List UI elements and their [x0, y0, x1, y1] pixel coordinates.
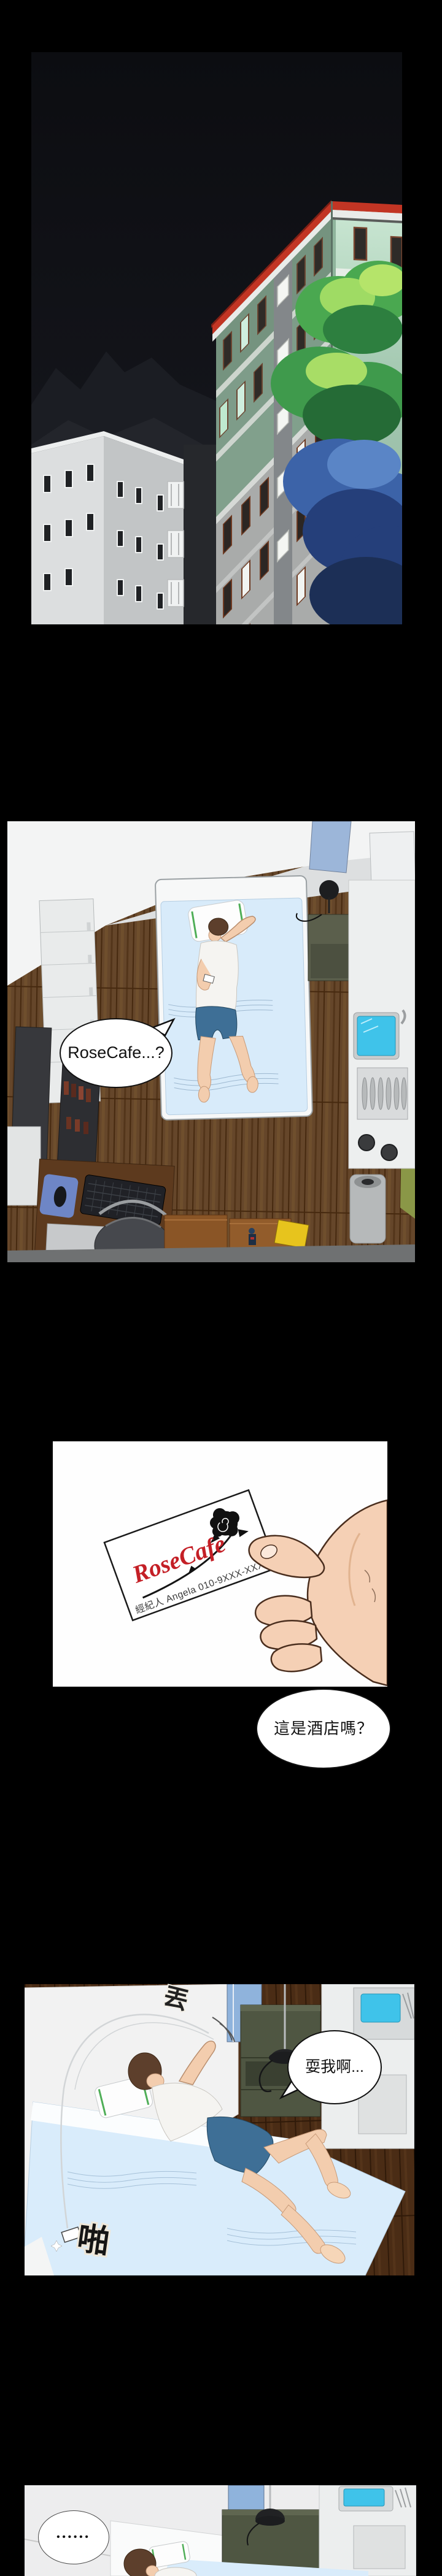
night-exterior-art — [31, 52, 402, 624]
speech-text-teasing: 耍我啊... — [305, 2059, 364, 2076]
speech-bubble-rosecafe: RoseCafe...? — [60, 1018, 173, 1088]
panel-night-exterior — [31, 52, 402, 624]
svg-text:啪: 啪 — [75, 2221, 112, 2261]
speech-bubble-teasing: 耍我啊... — [287, 2030, 382, 2104]
speech-text-silence: •••••• — [56, 2532, 91, 2543]
speech-text-rosecafe: RoseCafe...? — [68, 1044, 165, 1062]
sfx-slap: 啪 — [65, 2213, 122, 2269]
webtoon-page: RoseCafe 經紀人 Angela 010-9XXX-XXXX — [0, 0, 442, 2576]
sink-water — [344, 2489, 384, 2506]
white-building — [31, 431, 184, 624]
svg-text:丟: 丟 — [161, 1983, 191, 2015]
sink-water — [361, 1994, 400, 2022]
stove-burner — [381, 1144, 397, 1160]
stove-burner — [359, 1135, 374, 1151]
business-card-art: RoseCafe 經紀人 Angela 010-9XXX-XXXX — [53, 1441, 387, 1687]
yellow-box — [274, 1220, 309, 1248]
speech-bubble-hotel-question: 這是酒店嗎？ — [256, 1689, 391, 1769]
balconies — [168, 481, 184, 607]
kitchen-unit — [319, 2485, 416, 2576]
speech-text-hotel-question: 這是酒店嗎？ — [274, 1720, 373, 1738]
speech-bubble-silence: •••••• — [38, 2510, 109, 2564]
white-box — [7, 1127, 41, 1205]
sfx-throw: 丟 — [157, 1979, 194, 2020]
panel-business-card: RoseCafe 經紀人 Angela 010-9XXX-XXXX — [53, 1441, 387, 1687]
building-shadow-side — [184, 445, 218, 624]
cabinet-recess — [354, 2526, 405, 2569]
window-blue — [309, 821, 351, 873]
desk-lamp — [319, 880, 339, 900]
stairwell-strip — [274, 251, 292, 624]
